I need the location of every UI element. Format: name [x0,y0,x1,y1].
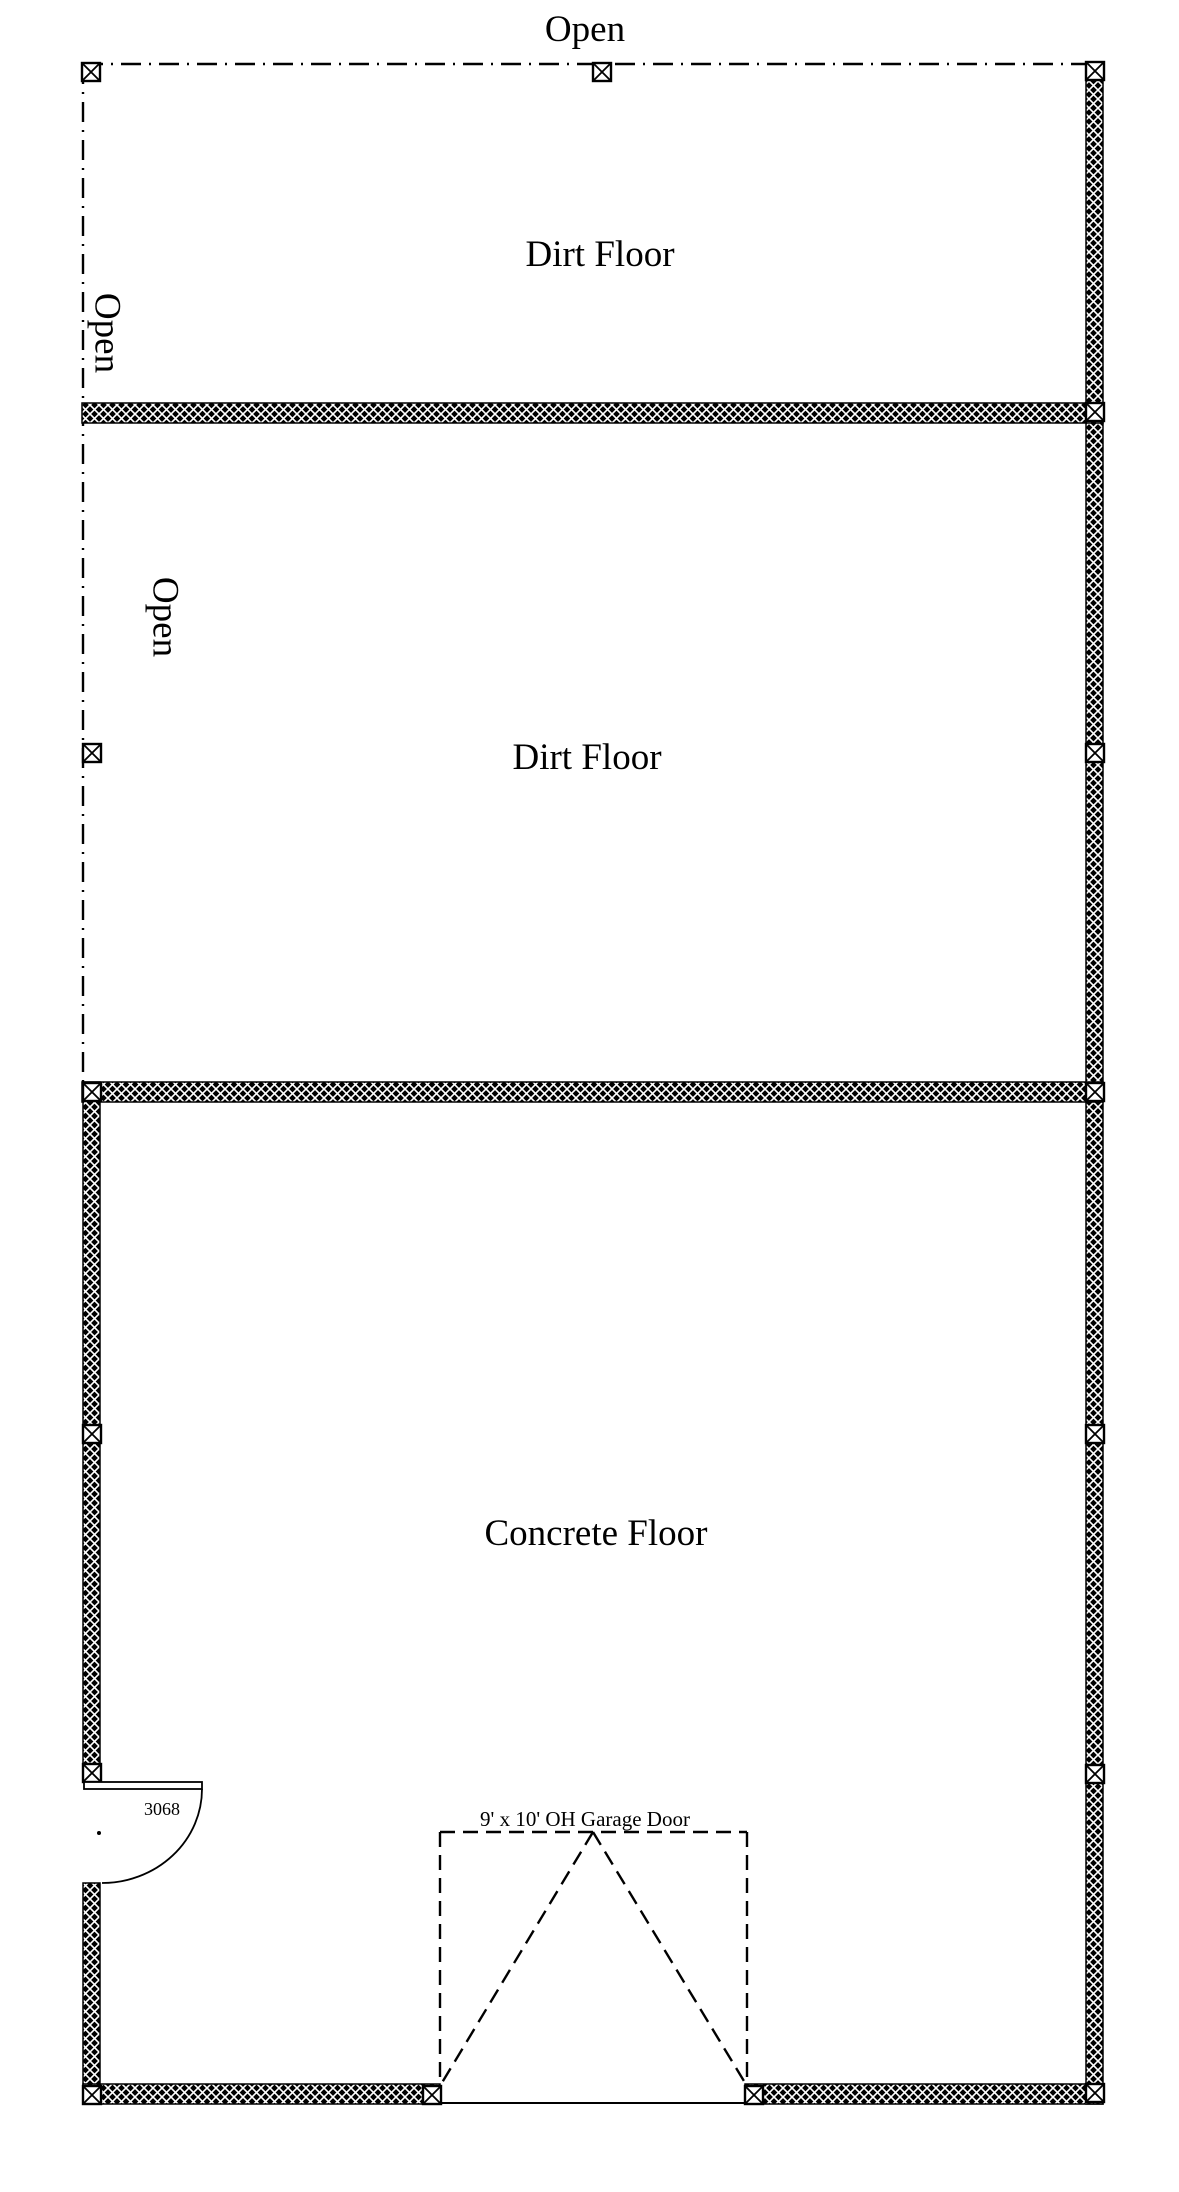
open-label-top: Open [545,9,625,50]
open-label-upper-left: Open [87,293,128,373]
interior-wall-lower [82,1082,1103,1102]
post-top-middle [593,63,611,81]
post-right-at-lower-wall [1086,1083,1104,1101]
post-right-mid-section3 [1086,1425,1104,1443]
concrete-floor-label: Concrete Floor [485,1513,708,1554]
bottom-exterior-wall-left-segment [83,2084,440,2104]
floor-plan-page: 3068 9' x 10' OH Garage Door Open Open O… [0,0,1179,2187]
dirt-floor-upper-label: Dirt Floor [525,234,674,275]
dirt-floor-middle-label: Dirt Floor [512,737,661,778]
door-hinge-dot [97,1831,101,1835]
post-top-right-corner [1086,62,1104,80]
open-label-lower-left: Open [145,577,186,657]
left-exterior-wall-lower-segment [83,1883,100,2104]
post-left-mid-section2 [83,744,101,762]
post-right-at-upper-wall [1086,403,1104,421]
bottom-exterior-wall-right-segment [745,2084,1103,2104]
post-right-mid-section2 [1086,744,1104,762]
post-garage-left-jamb [423,2086,441,2104]
floor-plan-drawing: 3068 9' x 10' OH Garage Door Open Open O… [0,0,1179,2187]
post-right-lower-section3 [1086,1765,1104,1783]
door-size-label: 3068 [144,1799,180,1819]
post-left-at-lower-wall [83,1083,101,1101]
post-left-above-door [83,1764,101,1782]
post-left-mid-section3 [83,1425,101,1443]
post-top-left-corner [82,63,100,81]
door-leaf [84,1782,202,1789]
post-bottom-left-corner [83,2086,101,2104]
interior-wall-upper [82,403,1103,423]
post-garage-right-jamb [745,2086,763,2104]
garage-door-label: 9' x 10' OH Garage Door [480,1807,690,1831]
post-bottom-right-corner [1086,2084,1104,2102]
